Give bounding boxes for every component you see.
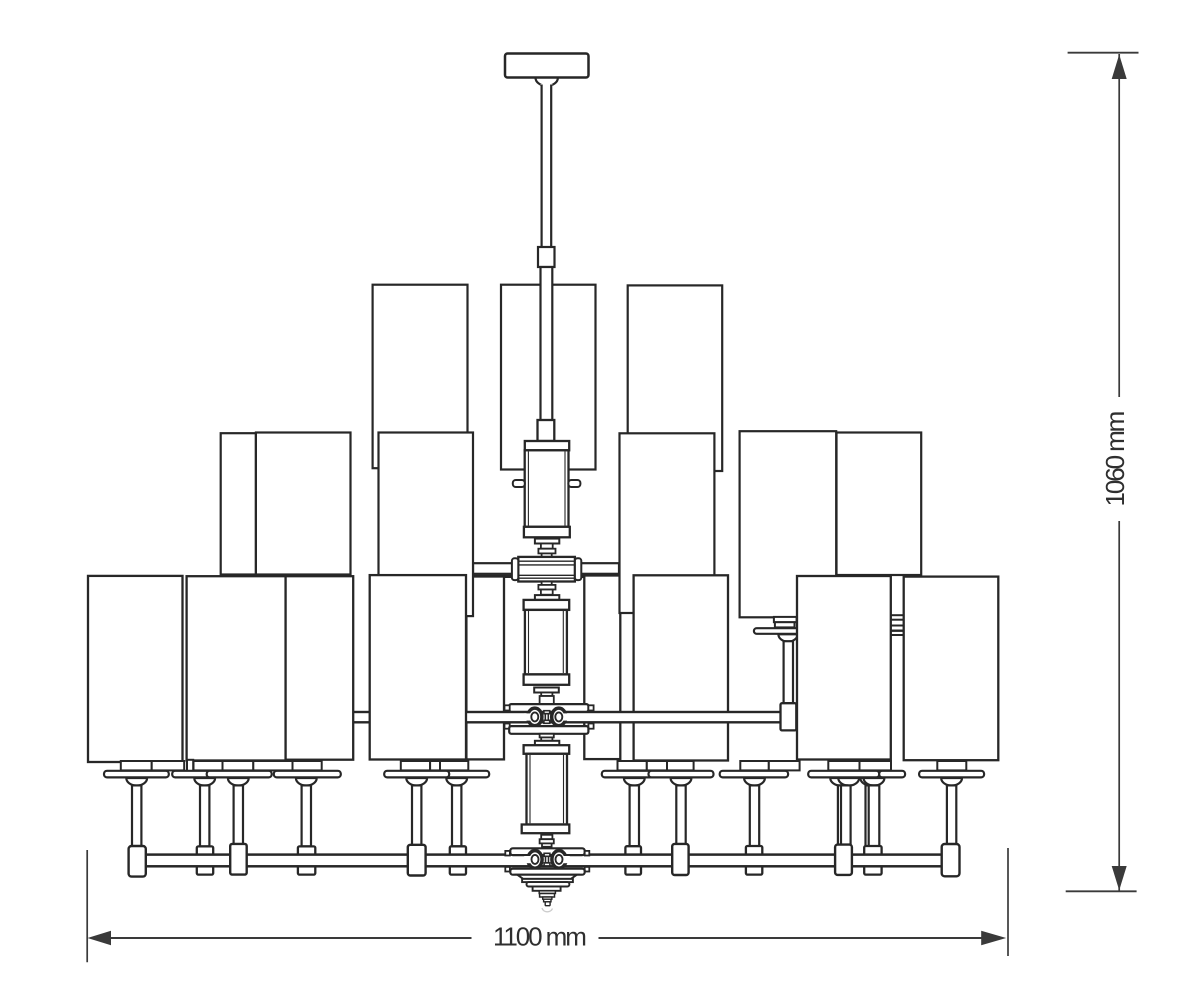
svg-text:1100 mm: 1100 mm	[493, 922, 585, 952]
svg-text:1060 mm: 1060 mm	[1100, 412, 1130, 506]
